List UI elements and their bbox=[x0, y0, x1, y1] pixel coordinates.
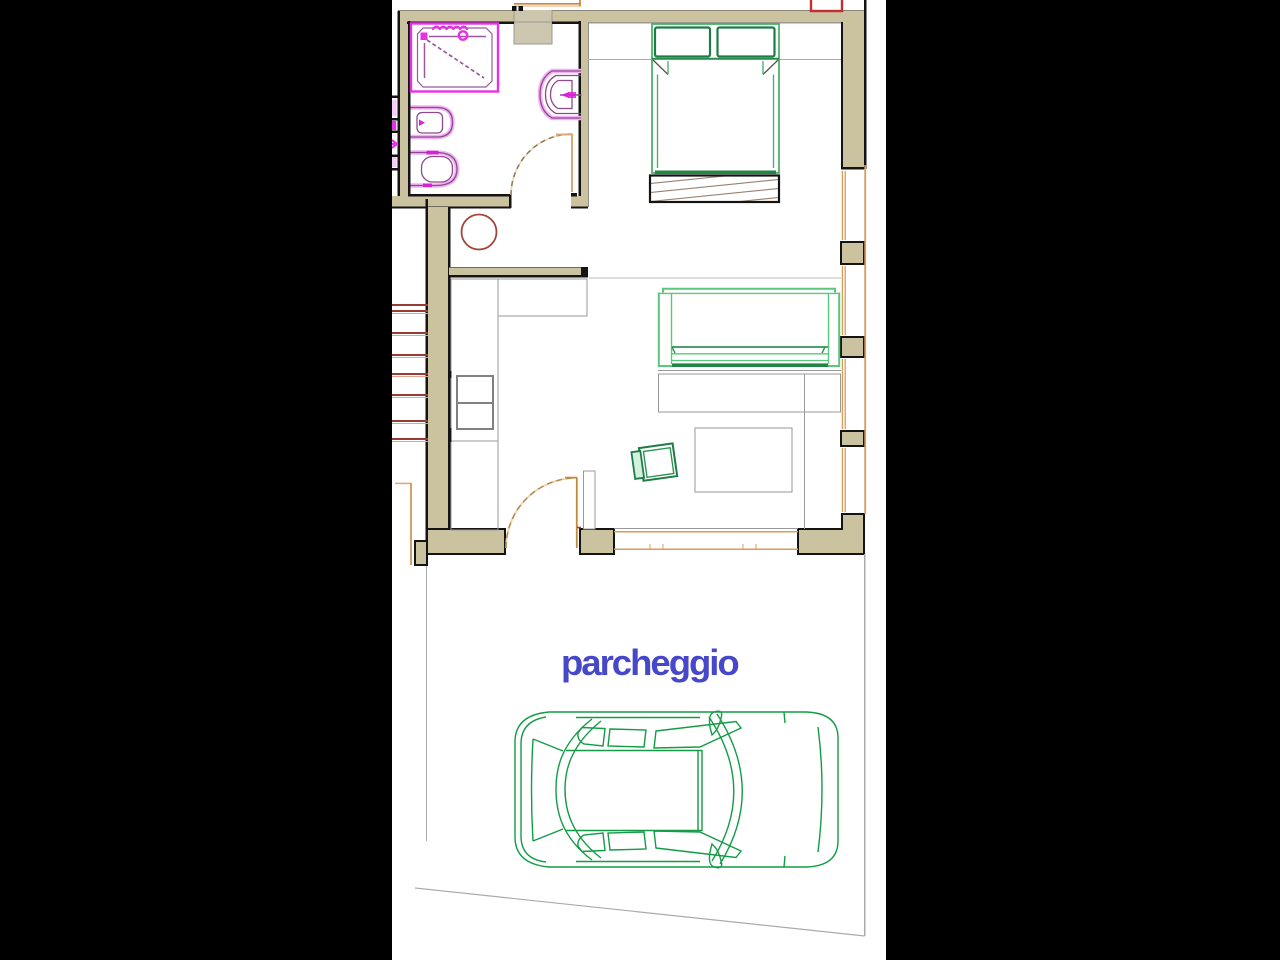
svg-text:parcheggio: parcheggio bbox=[561, 642, 738, 683]
